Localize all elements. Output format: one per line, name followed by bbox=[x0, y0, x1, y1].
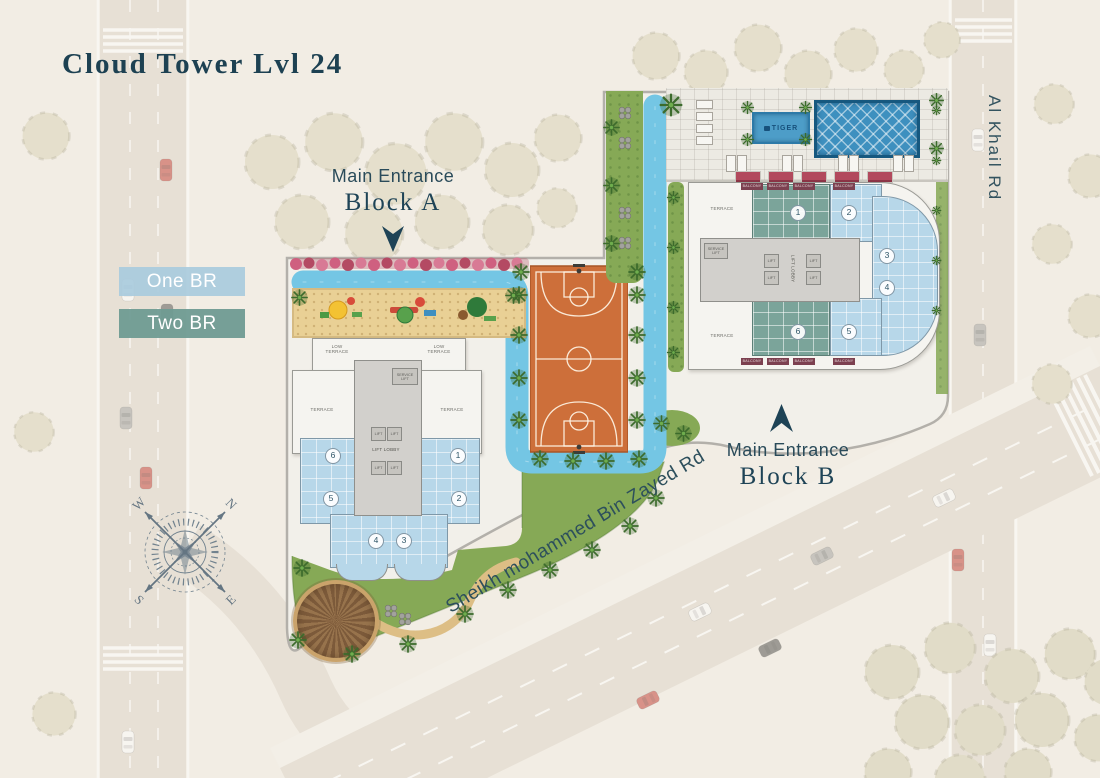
block-a-entrance-line2: Block A bbox=[301, 189, 485, 217]
compass-west-label: W bbox=[129, 493, 149, 513]
block-b-entrance-arrow-icon bbox=[770, 404, 793, 432]
compass-south-label: S bbox=[131, 592, 147, 608]
block-a-entrance-line1: Main Entrance bbox=[301, 166, 485, 187]
legend-two-br-label: Two BR bbox=[147, 313, 217, 335]
compass-rose: N W S E bbox=[125, 492, 245, 612]
legend-one-br: One BR bbox=[119, 267, 245, 296]
pink-shrub-row bbox=[290, 258, 523, 272]
compass-north-label: N bbox=[223, 495, 241, 513]
palm-trees-layer bbox=[0, 0, 1100, 778]
block-a-entrance-arrow-icon bbox=[382, 226, 404, 252]
site-plan-canvas: TIGER LOW TERRACE LOW TERRACE TERRACE TE… bbox=[0, 0, 1100, 778]
compass-east-label: E bbox=[223, 591, 239, 607]
legend: One BR Two BR bbox=[119, 267, 245, 338]
block-a-entrance-label: Main Entrance Block A bbox=[301, 166, 485, 217]
legend-two-br: Two BR bbox=[119, 309, 245, 338]
al-khail-road-label: Al Khail Rd bbox=[984, 95, 1004, 265]
legend-one-br-label: One BR bbox=[147, 271, 218, 293]
block-b-entrance-line2: Block B bbox=[696, 463, 880, 491]
page-title: Cloud Tower Lvl 24 bbox=[62, 48, 343, 81]
